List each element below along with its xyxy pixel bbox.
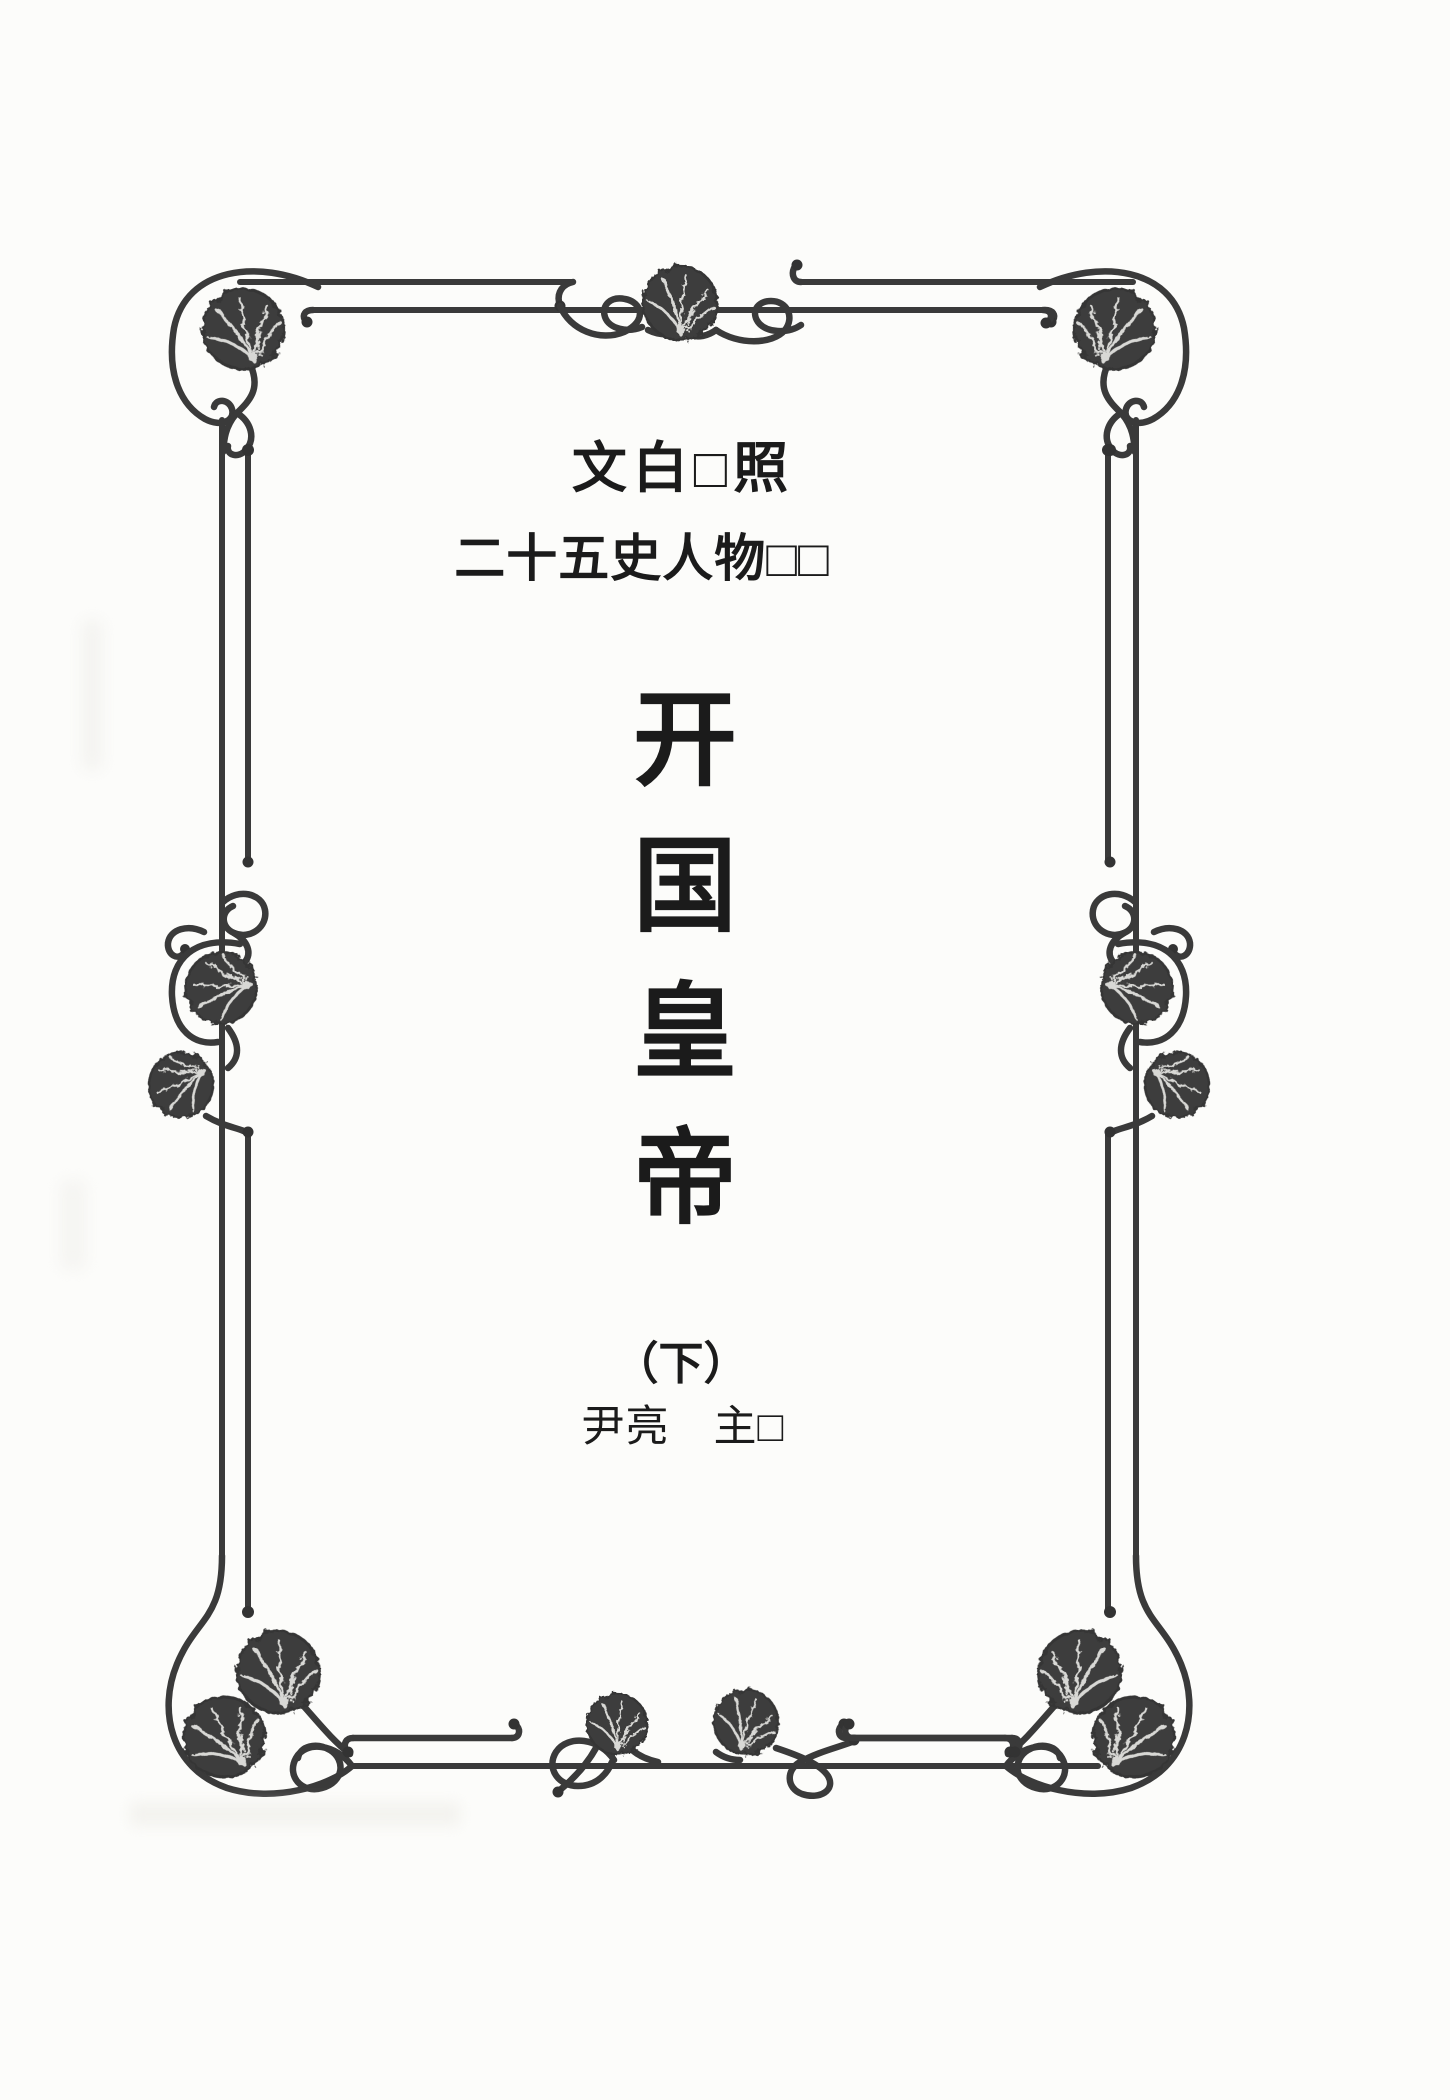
gingko-leaf-corner-bottom-right — [839, 1556, 1190, 1794]
gingko-leaf-ornament-right — [1093, 444, 1221, 1138]
gingko-leaf-corner-bottom-left — [168, 1556, 519, 1794]
volume-label: （下） — [613, 1338, 748, 1390]
gingko-leaf-ornament-bottom-center — [552, 1684, 1020, 1797]
byline: 尹亮 主□ — [582, 1402, 785, 1452]
gingko-leaf-corner-top-left — [172, 271, 318, 455]
book-title-page: 文白□照 二十五史人物□□ 开国皇帝 （下） 尹亮 主□ — [0, 0, 1450, 2100]
main-title-vertical: 开国皇帝 — [628, 668, 742, 1252]
series-line-1: 文白□照 — [572, 440, 794, 496]
series-line-2: 二十五史人物□□ — [454, 533, 830, 585]
gingko-leaf-corner-top-right — [1040, 271, 1186, 455]
gingko-leaf-ornament-top-center — [555, 260, 1115, 457]
